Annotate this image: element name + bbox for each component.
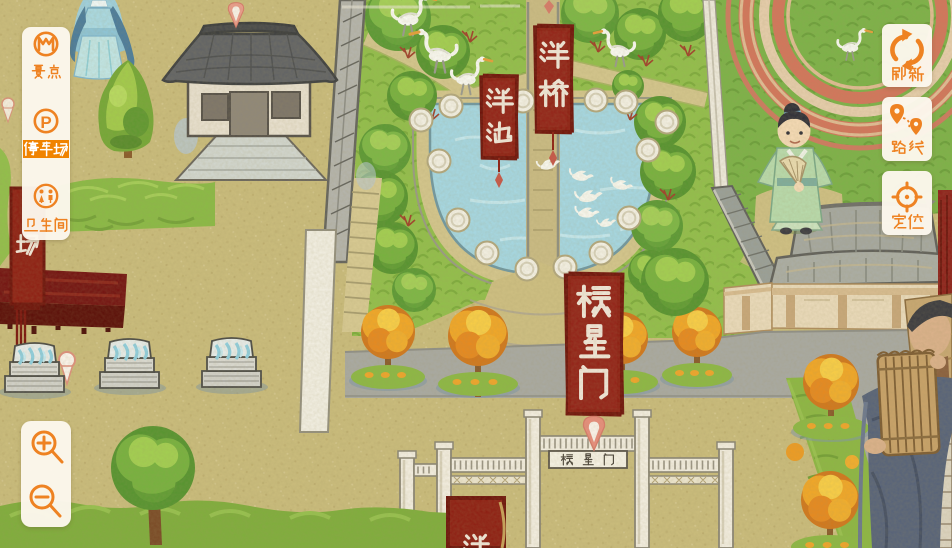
svg-text:P: P bbox=[40, 113, 51, 132]
